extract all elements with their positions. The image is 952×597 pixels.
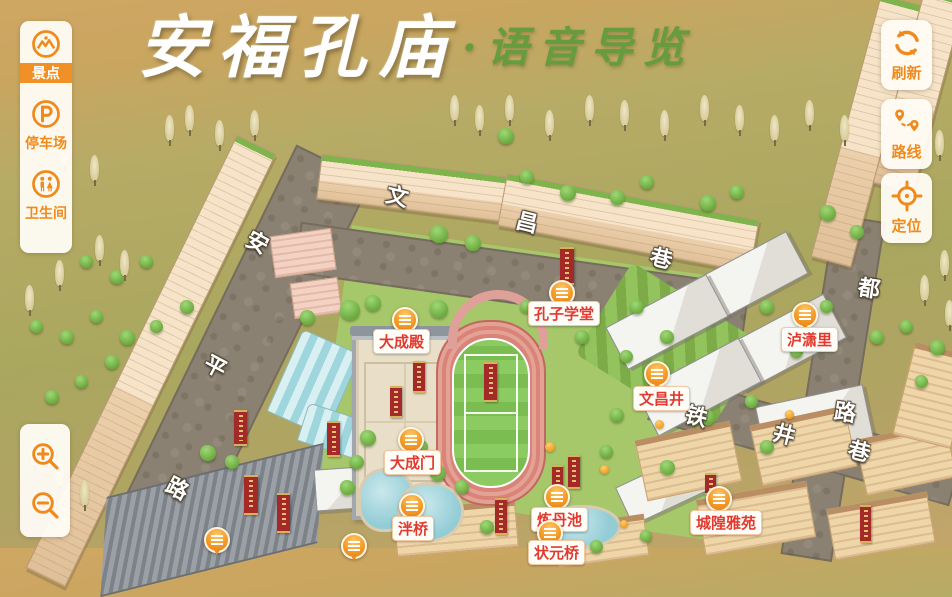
toolbar-item-scenic-spots[interactable]: 景点 — [20, 29, 72, 83]
route-pins-icon — [891, 106, 923, 138]
poi-marker[interactable] — [341, 533, 367, 559]
toolbar-item-restroom[interactable]: 卫生间 — [20, 169, 72, 223]
locate-crosshair-icon — [891, 180, 923, 212]
poi-label[interactable]: 状元桥 — [528, 540, 585, 565]
refresh-label[interactable]: 刷新 — [891, 62, 921, 83]
scenic-spot-icon — [31, 29, 61, 59]
left-toolbar: 景点 停车场 卫生间 — [20, 21, 72, 253]
locate-button[interactable]: 定位 — [881, 173, 932, 243]
zoom-controls — [20, 424, 70, 537]
poi-marker[interactable] — [644, 361, 670, 387]
toolbar-label-restroom[interactable]: 卫生间 — [20, 203, 72, 223]
poi-label[interactable]: 大成殿 — [373, 329, 430, 354]
poi-label[interactable]: 城隍雅苑 — [690, 510, 762, 535]
poi-label[interactable]: 文昌井 — [633, 386, 690, 411]
locate-label[interactable]: 定位 — [891, 215, 921, 236]
restroom-icon — [31, 169, 61, 199]
refresh-button[interactable]: 刷新 — [881, 20, 932, 90]
route-button[interactable]: 路线 — [881, 99, 932, 169]
poi-layer: 大成殿孔子学堂泸潇里文昌井大成门泮桥炼丹池城隍雅苑状元桥 — [0, 0, 952, 548]
toolbar-label-scenic-spots[interactable]: 景点 — [20, 63, 72, 83]
toolbar-item-parking[interactable]: 停车场 — [20, 99, 72, 153]
poi-label[interactable]: 泮桥 — [392, 516, 434, 541]
poi-label[interactable]: 孔子学堂 — [528, 301, 600, 326]
poi-marker[interactable] — [792, 302, 818, 328]
toolbar-label-parking[interactable]: 停车场 — [20, 133, 72, 153]
poi-marker[interactable] — [204, 527, 230, 553]
parking-icon — [31, 99, 61, 129]
zoom-in-icon[interactable] — [29, 440, 61, 472]
poi-label[interactable]: 大成门 — [384, 450, 441, 475]
poi-label[interactable]: 泸潇里 — [781, 327, 838, 352]
zoom-out-icon[interactable] — [29, 489, 61, 521]
poi-marker[interactable] — [706, 486, 732, 512]
route-label[interactable]: 路线 — [891, 141, 921, 162]
refresh-icon — [891, 27, 923, 59]
